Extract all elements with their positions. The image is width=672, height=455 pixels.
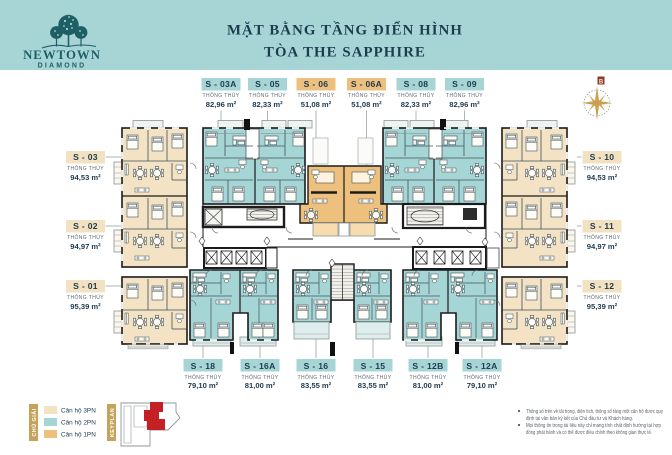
svg-text:THÔNG THỦY: THÔNG THỦY [348, 92, 385, 99]
svg-text:THÔNG THỦY: THÔNG THỦY [203, 92, 240, 99]
svg-text:THÔNG THỦY: THÔNG THỦY [242, 374, 279, 381]
svg-text:94,97 m²: 94,97 m² [70, 242, 101, 251]
svg-text:THÔNG THỦY: THÔNG THỦY [398, 92, 435, 99]
svg-text:81,00 m²: 81,00 m² [245, 381, 276, 390]
svg-text:94,97 m²: 94,97 m² [587, 242, 618, 251]
svg-text:THÔNG THỦY: THÔNG THỦY [298, 92, 335, 99]
svg-text:THÔNG THỦY: THÔNG THỦY [584, 165, 621, 172]
svg-text:82,33 m²: 82,33 m² [252, 100, 283, 109]
svg-text:THÔNG THỦY: THÔNG THỦY [185, 374, 222, 381]
svg-text:THÔNG THỦY: THÔNG THỦY [298, 374, 335, 381]
svg-text:S - 12A: S - 12A [466, 361, 497, 371]
svg-text:Căn hộ 3PN: Căn hộ 3PN [61, 408, 96, 415]
svg-text:THÔNG THỦY: THÔNG THỦY [464, 374, 501, 381]
svg-text:THÔNG THỦY: THÔNG THỦY [67, 165, 104, 172]
svg-text:S - 11: S - 11 [590, 221, 614, 231]
svg-text:94,53 m²: 94,53 m² [587, 173, 618, 182]
svg-text:94,53 m²: 94,53 m² [70, 173, 101, 182]
svg-text:S - 12: S - 12 [590, 281, 615, 291]
svg-text:Thông số trên về tải trọng, di: Thông số trên về tải trọng, diện tích, t… [526, 409, 663, 415]
svg-text:95,39 m²: 95,39 m² [70, 302, 101, 311]
svg-text:TÒA THE SAPPHIRE: TÒA THE SAPPHIRE [264, 44, 426, 61]
svg-text:THÔNG THỦY: THÔNG THỦY [584, 294, 621, 301]
svg-text:S - 03: S - 03 [73, 152, 98, 162]
svg-text:51,08 m²: 51,08 m² [301, 100, 332, 109]
svg-text:CHÚ GIẢI: CHÚ GIẢI [31, 408, 38, 436]
svg-text:83,55 m²: 83,55 m² [301, 381, 332, 390]
svg-text:82,33 m²: 82,33 m² [401, 100, 432, 109]
svg-text:S - 02: S - 02 [73, 221, 98, 231]
svg-text:THÔNG THỦY: THÔNG THỦY [67, 294, 104, 301]
svg-text:S - 18: S - 18 [191, 361, 216, 371]
svg-text:MẶT BẰNG TẦNG ĐIỂN HÌNH: MẶT BẰNG TẦNG ĐIỂN HÌNH [227, 21, 463, 39]
svg-text:THÔNG THỦY: THÔNG THỦY [446, 92, 483, 99]
svg-text:Căn hộ 2PN: Căn hộ 2PN [61, 420, 96, 427]
svg-text:S - 06: S - 06 [304, 79, 329, 89]
svg-text:79,10 m²: 79,10 m² [188, 381, 219, 390]
svg-text:S - 01: S - 01 [73, 281, 98, 291]
svg-text:DIAMOND: DIAMOND [38, 63, 87, 70]
svg-text:S - 08: S - 08 [404, 79, 429, 89]
svg-text:S - 06A: S - 06A [351, 79, 382, 89]
svg-text:83,55 m²: 83,55 m² [358, 381, 389, 390]
svg-text:S - 05: S - 05 [255, 79, 280, 89]
svg-text:Căn hộ 1PN: Căn hộ 1PN [61, 432, 96, 439]
svg-text:THÔNG THỦY: THÔNG THỦY [67, 234, 104, 241]
svg-text:79,10 m²: 79,10 m² [467, 381, 498, 390]
svg-text:S - 16A: S - 16A [244, 361, 275, 371]
svg-text:KEYPLAN: KEYPLAN [110, 408, 116, 437]
svg-text:NEWTOWN: NEWTOWN [23, 48, 101, 62]
svg-text:82,96 m²: 82,96 m² [449, 100, 480, 109]
svg-text:S - 03A: S - 03A [205, 79, 236, 89]
svg-text:THÔNG THỦY: THÔNG THỦY [410, 374, 447, 381]
svg-text:S - 16: S - 16 [304, 361, 329, 371]
svg-text:82,96 m²: 82,96 m² [206, 100, 237, 109]
svg-text:B: B [599, 80, 604, 86]
svg-text:định tại văn bản ký kết của Ch: định tại văn bản ký kết của Chủ đầu tư v… [526, 415, 633, 422]
svg-text:S - 12B: S - 12B [412, 361, 443, 371]
svg-text:81,00 m²: 81,00 m² [413, 381, 444, 390]
svg-text:S - 10: S - 10 [590, 152, 615, 162]
svg-text:51,08 m²: 51,08 m² [351, 100, 382, 109]
svg-text:đồng phát hành và có thể được: đồng phát hành và có thể được điều chỉnh… [526, 429, 652, 436]
svg-text:THÔNG THỦY: THÔNG THỦY [584, 234, 621, 241]
svg-text:S - 15: S - 15 [361, 361, 386, 371]
svg-text:THÔNG THỦY: THÔNG THỦY [355, 374, 392, 381]
svg-text:S - 09: S - 09 [452, 79, 477, 89]
svg-text:THÔNG THỦY: THÔNG THỦY [249, 92, 286, 99]
svg-text:Mọi thông tin trong tài liệu n: Mọi thông tin trong tài liệu này chỉ man… [526, 422, 661, 429]
svg-text:95,39 m²: 95,39 m² [587, 302, 618, 311]
